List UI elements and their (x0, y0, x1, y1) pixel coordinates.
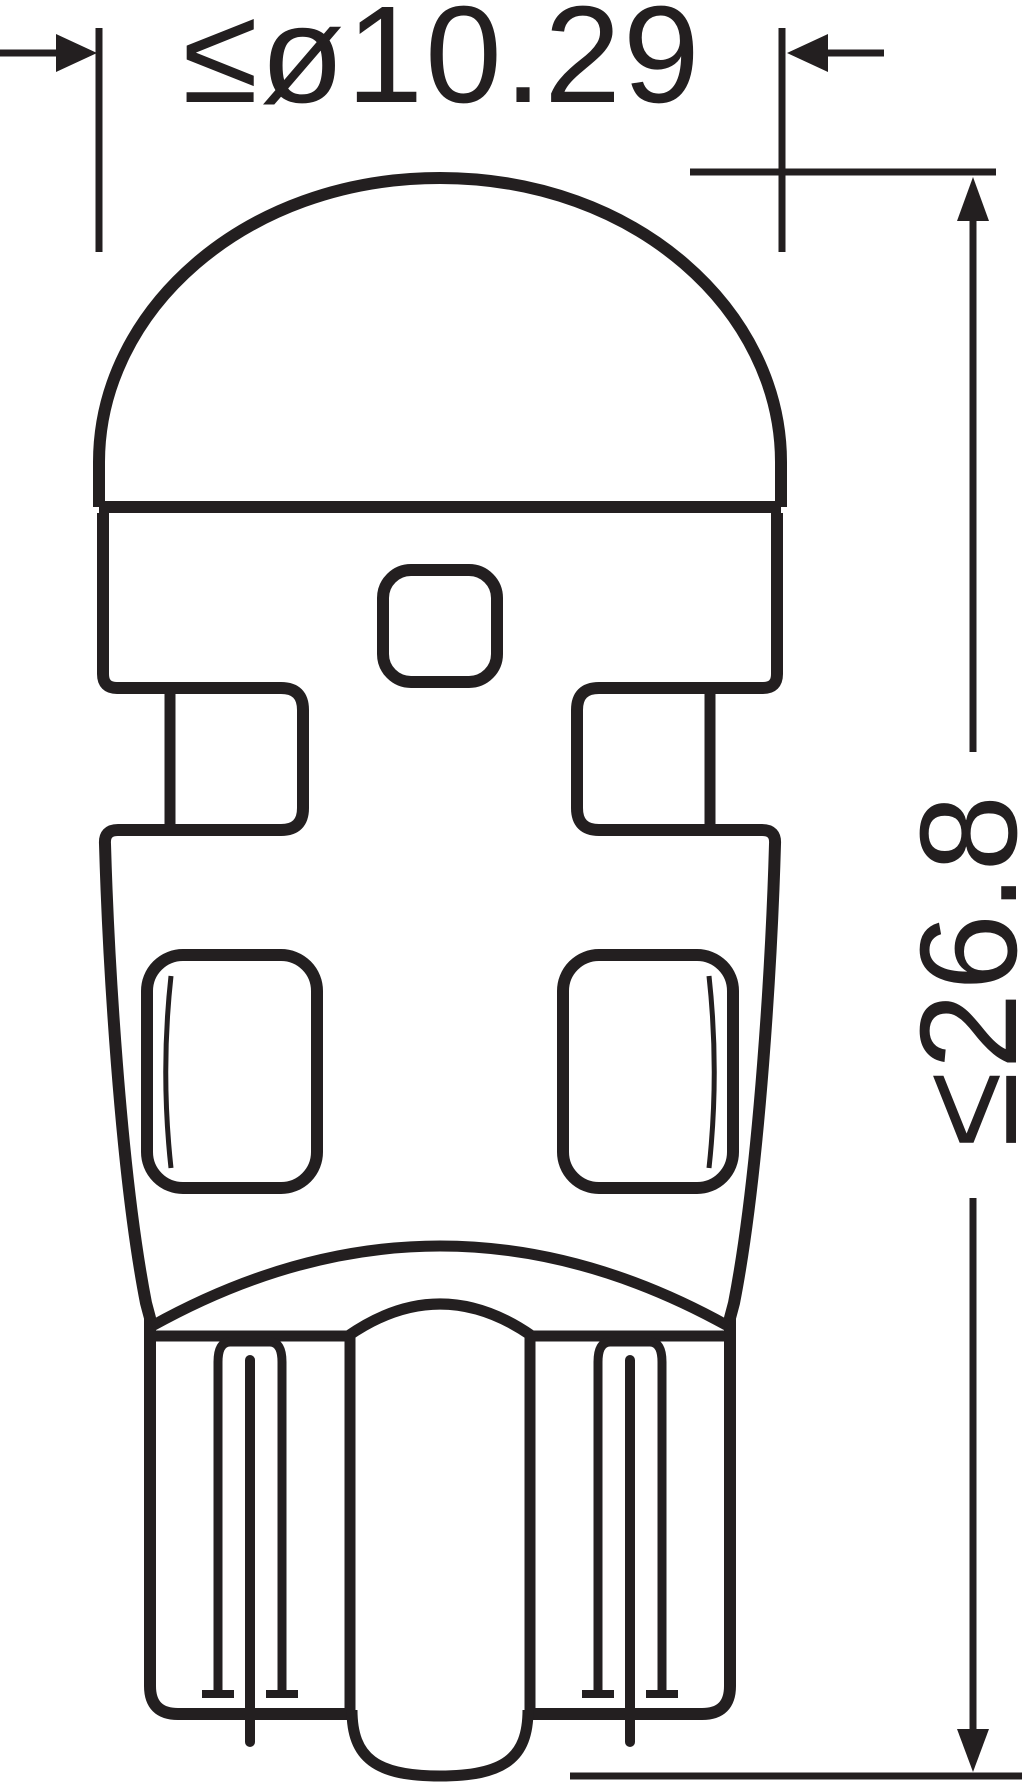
bulb-left-silhouette (103, 513, 303, 1714)
length-dimension: ≤26.8 (570, 172, 1024, 1776)
led-window-left-inner-edge (166, 976, 171, 1168)
length-arrow-up-head (957, 177, 989, 221)
diameter-dimension-label: ≤ø10.29 (182, 0, 701, 132)
glass-press-top-edge (154, 1304, 726, 1336)
bulb-right-silhouette (577, 513, 777, 1714)
glass-tip-dome (352, 1710, 528, 1776)
length-dimension-label: ≤26.8 (892, 793, 1024, 1147)
center-window (383, 570, 497, 682)
led-window-right (563, 955, 733, 1188)
length-arrow-down-head (957, 1729, 989, 1772)
base-top-curve (152, 1246, 728, 1326)
diameter-arrow-left-head (56, 34, 97, 72)
led-window-right-inner-edge (709, 976, 714, 1168)
bulb-dome-outline (99, 178, 781, 507)
diameter-arrow-right-head (787, 34, 828, 72)
diameter-dimension: ≤ø10.29 (0, 0, 884, 252)
bulb-outline (99, 178, 781, 1714)
led-window-left (147, 955, 317, 1188)
bulb-dimension-drawing: ≤ø10.29 ≤26.8 (0, 0, 1024, 1784)
wedge-base (152, 1246, 728, 1776)
technical-drawing-page: ≤ø10.29 ≤26.8 (0, 0, 1024, 1784)
